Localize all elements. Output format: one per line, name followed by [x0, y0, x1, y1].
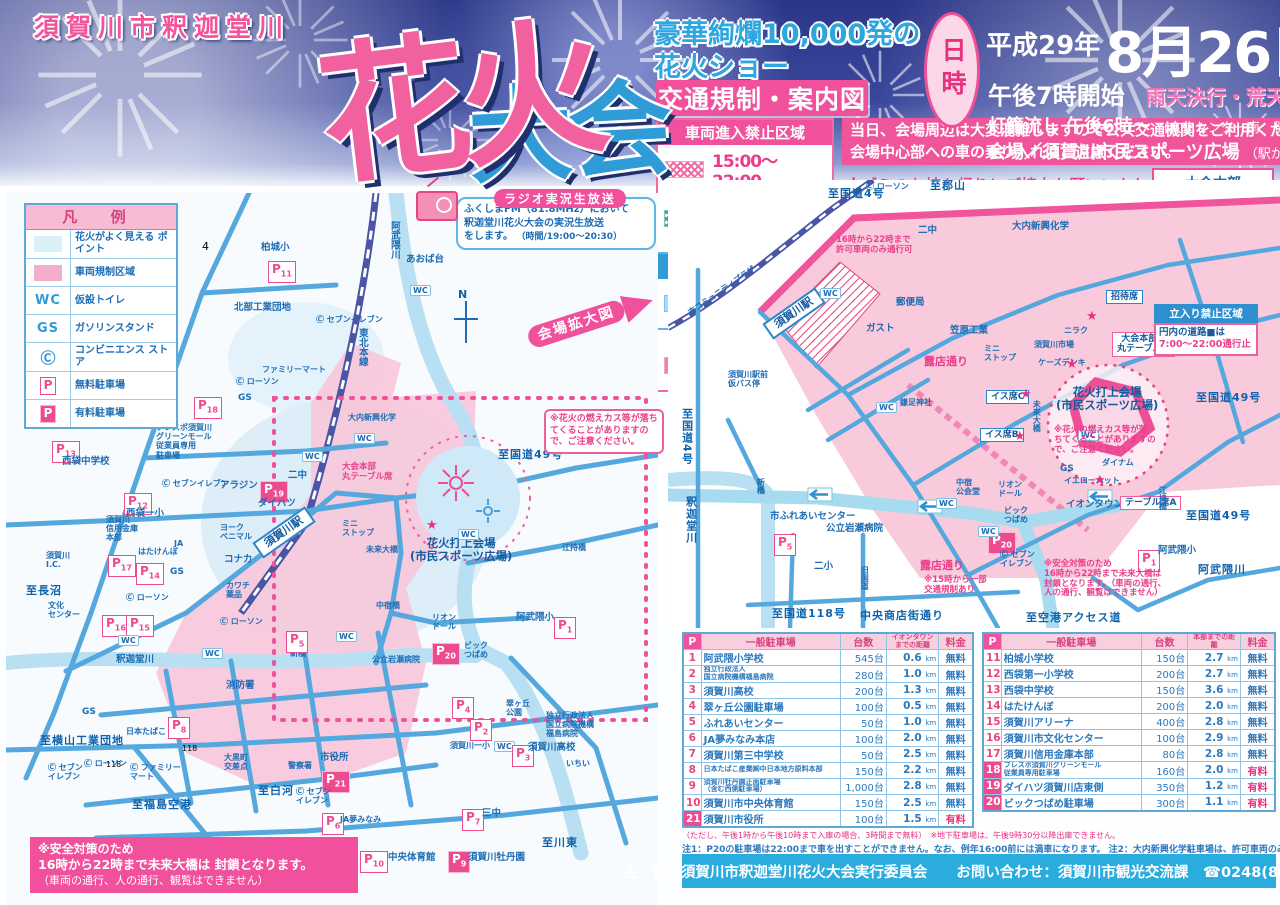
map-label: 笠原工業 [950, 326, 988, 337]
map-label: WC [936, 498, 957, 509]
free-parking-marker: P14 [136, 563, 164, 585]
parking-number: 4 [683, 698, 701, 714]
legend-label: 無料駐車場 [71, 378, 129, 394]
map-label: 花火打上会場 (市民スポーツ広場) [1056, 386, 1158, 412]
km-unit: km [1227, 671, 1238, 679]
map-label: JA夢みなみ [340, 815, 381, 824]
parking-col-header: 台数 [1141, 633, 1188, 650]
parking-name: 柏城小学校 [1001, 650, 1141, 666]
parking-capacity: 100台 [840, 698, 886, 714]
parking-capacity: 200台 [1141, 666, 1188, 682]
map-label: 阿武隈小 [516, 613, 554, 624]
parking-number: 21 [683, 811, 701, 828]
parking-capacity: 350台 [1141, 778, 1188, 794]
legend-symbol: P [26, 372, 71, 399]
touro-label: 灯籠流し 午後6時～ [988, 116, 1151, 137]
map-label: はたけんぼ [138, 547, 178, 556]
map-label: ダイナム [1102, 458, 1134, 467]
parking-distance: 1.1 km [1188, 794, 1241, 811]
map-label: 須賀川市場 [1034, 340, 1074, 349]
free-parking-marker: P [40, 377, 57, 395]
map-label: WC [118, 635, 139, 646]
parking-row: 14はたけんぼ200台2.0 km無料 [983, 698, 1275, 714]
parking-name: 須賀川高校 [701, 682, 840, 698]
map-label: GS [82, 707, 96, 717]
parking-row: 4翠ヶ丘公園駐車場100台0.5 km無料 [683, 698, 973, 714]
parking-name: 日本たばこ産業㈱中日本地方原料本部 [701, 762, 840, 778]
map-label: 露店通り [920, 560, 964, 573]
parking-capacity: 80台 [1141, 746, 1188, 762]
parking-number: 8 [683, 762, 701, 778]
map-label: P1 [554, 615, 576, 639]
legend-label: ガソリンスタンド [71, 321, 159, 337]
legend-row: 車両規制区域 [26, 259, 176, 287]
parking-name: フレスポ須賀川グリーンモール 従業員専用駐車場 [1001, 762, 1141, 778]
map-label: Ⓒ ローソン [126, 593, 169, 602]
map-label: 大会本部 丸テーブル席 [342, 463, 393, 483]
parking-fee: 無料 [939, 746, 973, 762]
parking-distance: 2.5 km [886, 795, 938, 811]
legend-symbol: Ⓒ [26, 343, 71, 371]
touro-line: 灯籠流し 午後6時～ （文化センター南 釈迦堂川河川敷） [988, 112, 1280, 138]
parking-col-header: 一般駐車場 [1001, 633, 1141, 650]
map-label: ガスト [866, 324, 895, 335]
parking-row: 3須賀川高校200台1.3 km無料 [683, 682, 973, 698]
parking-distance: 1.5 km [886, 811, 938, 828]
map-label: 釈迦堂川 [116, 655, 154, 666]
map-label: Ⓒ セブンイレブン [316, 315, 383, 324]
parking-distance: 2.0 km [1188, 698, 1241, 714]
parking-number: 16 [983, 730, 1001, 746]
map-label: コナカ [224, 555, 253, 566]
legend-row: WC仮設トイレ [26, 287, 176, 315]
map-label: 須賀川一小 [450, 741, 490, 750]
parking-name: ビックつばめ駐車場 [1001, 794, 1141, 811]
legend-label: 車両規制区域 [71, 265, 139, 281]
parking-fee: 無料 [1241, 650, 1276, 666]
parking-row: 15須賀川アリーナ400台2.8 km無料 [983, 714, 1275, 730]
map-label: 大黒町 交差点 [224, 753, 248, 771]
no-go-title: 立入り禁止区域 [1154, 304, 1258, 323]
parking-row: 1阿武隈小学校545台0.6 km無料 [683, 650, 973, 666]
map-label: ★ [1020, 388, 1032, 403]
parking-name: ふれあいセンター [701, 714, 840, 730]
parking-name: 阿武隈小学校 [701, 650, 840, 666]
map-label: あおば台 [406, 255, 444, 266]
parking-fee: 無料 [939, 698, 973, 714]
parking-fee: 無料 [939, 714, 973, 730]
legend-symbol [26, 230, 71, 258]
map-label: 須賀川 信用金庫 本部 [106, 515, 138, 543]
touro-note: （文化センター南 釈迦堂川河川敷） [1156, 121, 1280, 136]
no-go-line1: 円内の道路■は [1159, 327, 1253, 339]
free-parking-marker: P5 [286, 631, 308, 653]
flyer-page: 須賀川市釈迦堂川 花火 大会 豪華絢爛10,000発の 花火ショー 交通規制・案… [0, 0, 1280, 905]
parking-number: 14 [983, 698, 1001, 714]
map-legend: 凡 例 花火がよく見える ポイント車両規制区域WC仮設トイレGSガソリンスタンド… [24, 203, 178, 429]
parking-capacity: 300台 [1141, 794, 1188, 811]
parking-number: 5 [683, 714, 701, 730]
map-label: 未来大橋 [366, 545, 398, 554]
km-unit: km [1227, 655, 1238, 663]
parking-col-header: P [683, 633, 701, 650]
era-label: 平成29年 [986, 31, 1100, 61]
radio-time: （時間/19:00～20:30） [516, 232, 622, 242]
parking-capacity: 100台 [840, 811, 886, 828]
falling-ash-note: ※花火の燃えカス等が落ちてくることがありますので、ご注意ください。 [544, 409, 664, 454]
parking-capacity: 150台 [1141, 682, 1188, 698]
venue-label: 会場／須賀川市民スポーツ広場 [988, 142, 1240, 163]
km-unit: km [1227, 767, 1238, 775]
parking-name: 西袋第一小学校 [1001, 666, 1141, 682]
parking-capacity: 200台 [840, 682, 886, 698]
gs-icon: GS [37, 321, 59, 336]
parking-distance: 0.6 km [886, 650, 938, 666]
map-label: P17 [108, 553, 136, 577]
map-label: WC [202, 648, 223, 659]
parking-fee: 有料 [1241, 762, 1276, 778]
radio-line2: 釈迦堂川花火大会の実況生放送 [464, 218, 604, 229]
legend-label: 有料駐車場 [71, 406, 129, 422]
map-label: WC [410, 285, 431, 296]
safety-line1: ※安全対策のため [38, 841, 350, 857]
parking-distance: 2.8 km [886, 778, 938, 794]
parking-number: 18 [983, 762, 1001, 778]
parking-name: はたけんぼ [1001, 698, 1141, 714]
legend-row: P有料駐車場 [26, 400, 176, 427]
parking-distance: 2.5 km [886, 746, 938, 762]
parking-capacity: 100台 [840, 730, 886, 746]
parking-fee: 有料 [939, 811, 973, 828]
weather-policy: 雨天決行・荒天中止 [1146, 85, 1280, 109]
map-label: JA [174, 539, 183, 548]
start-time: 午後7時開始 [988, 82, 1125, 110]
parking-row: 12西袋第一小学校200台2.7 km無料 [983, 666, 1275, 682]
legend-label: 花火がよく見える ポイント [71, 230, 176, 258]
parking-capacity: 50台 [840, 714, 886, 730]
map-label: 公立岩瀬病院 [826, 524, 883, 535]
map-label: Ⓒ ファミリー マート [130, 763, 181, 781]
map-label: 阿武隈小 [1158, 546, 1196, 557]
parking-fee: 無料 [1241, 730, 1276, 746]
map-label: Ⓒ ローソン [236, 377, 279, 386]
legend-symbol [26, 259, 71, 286]
map-label: Ⓒ ローソン [84, 759, 127, 768]
map-label: 旧国道 [860, 566, 869, 590]
parking-fee: 無料 [1241, 746, 1276, 762]
venue-enlarged-map: 立入り禁止区域 円内の道路■は 7:00～22:00通行止 至国道4号Ⓒ ローソ… [668, 180, 1280, 628]
free-parking-marker: P8 [168, 717, 190, 739]
parking-row: 10須賀川市中央体育館150台2.5 km無料 [683, 795, 973, 811]
banner: 須賀川市釈迦堂川 花火 大会 豪華絢爛10,000発の 花火ショー 交通規制・案… [0, 0, 1280, 186]
km-unit: km [1227, 783, 1238, 791]
map-label: 至国道49号 [1186, 510, 1251, 523]
parking-section: P一般駐車場台数イオンタウンまでの距離料金1阿武隈小学校545台0.6 km無料… [682, 632, 1276, 855]
map-label: ミニ ストップ [342, 519, 374, 537]
map-label: イオンタウン [1066, 500, 1123, 511]
free-parking-marker: P10 [360, 851, 388, 873]
map-label: リオン ドール [998, 480, 1022, 498]
parking-capacity: 150台 [1141, 650, 1188, 666]
map-label: P11 [268, 259, 296, 283]
parking-capacity: 400台 [1141, 714, 1188, 730]
parking-number: 6 [683, 730, 701, 746]
parking-number: 3 [683, 682, 701, 698]
map-label: GS [170, 567, 184, 577]
km-unit: km [1227, 751, 1238, 759]
map-label: ダイハツ [258, 499, 296, 510]
parking-distance: 2.9 km [1188, 730, 1241, 746]
parking-col-header: P [983, 633, 1001, 650]
parking-distance: 2.0 km [1188, 762, 1241, 778]
map-label: 公立岩瀬病院 [372, 655, 420, 664]
map-label: WC [820, 288, 841, 299]
map-label: 二中 [288, 471, 307, 482]
parking-row: 8日本たばこ産業㈱中日本地方原料本部150台2.2 km無料 [683, 762, 973, 778]
map-legend-title: 凡 例 [26, 205, 176, 230]
map-legend-rows: 花火がよく見える ポイント車両規制区域WC仮設トイレGSガソリンスタンドⒸコンビ… [26, 230, 176, 427]
parking-name: ダイハツ須賀川店東側 [1001, 778, 1141, 794]
parking-capacity: 160台 [1141, 762, 1188, 778]
map-label: いちい [566, 759, 590, 768]
map-label: 江持橋 [1158, 486, 1167, 510]
map-label: Ⓒ セブンイレブン [162, 479, 229, 488]
parking-name: JA夢みなみ本店 [701, 730, 840, 746]
parking-capacity: 100台 [1141, 730, 1188, 746]
map-label: 中央体育館 [388, 853, 436, 864]
parking-number: 15 [983, 714, 1001, 730]
map-label: WC [354, 433, 375, 444]
map-label: アラジン [220, 481, 258, 492]
map-label: 未来大橋 [1032, 400, 1041, 432]
parking-number: 17 [983, 746, 1001, 762]
map-label: ※15時から一部 交通規制あり [924, 576, 987, 596]
map-label: ★ [426, 519, 438, 534]
map-label: 至郡山 [930, 180, 966, 193]
river-title: 須賀川市釈迦堂川 [34, 8, 290, 44]
bridge-closure-notice: ※安全対策のため 16時から22時まで未来大橋は 封鎖となります。 （車両の通行… [30, 837, 358, 893]
parking-row: 7須賀川第三中学校50台2.5 km無料 [683, 746, 973, 762]
parking-header-row: P一般駐車場台数イオンタウンまでの距離料金 [683, 633, 973, 650]
map-label: 須賀川駅前 仮バス停 [728, 370, 768, 388]
map-label: WC [336, 631, 357, 642]
map-label: 至国道118号 [772, 608, 846, 621]
map-label: テーブル席A [1120, 496, 1181, 510]
parking-row: 5ふれあいセンター50台1.0 km無料 [683, 714, 973, 730]
map-label: 独立行政法人 国立病院機構 福島病院 [546, 711, 594, 739]
map-label: 日本たばこ [126, 727, 166, 736]
traffic-guide-badge: 交通規制・案内図 [656, 80, 868, 116]
map-label: P5 [286, 629, 308, 653]
parking-col-header: 本部までの距離 [1188, 633, 1241, 650]
km-unit: km [1227, 799, 1238, 807]
map-label: Ⓒ ローソン [866, 182, 909, 191]
parking-distance: 3.6 km [1188, 682, 1241, 698]
parking-col-header: 一般駐車場 [701, 633, 840, 650]
map-label: ミニ ストップ [984, 344, 1016, 362]
venue-note: （駅から鑑賞エリアまで徒歩10分） [1245, 147, 1280, 162]
parking-fee: 無料 [1241, 666, 1276, 682]
map-label: N [458, 289, 468, 302]
map-label: ★ [1066, 358, 1078, 373]
km-unit: km [925, 783, 936, 791]
map-label: 市ふれあいセンター [770, 512, 856, 523]
map-label: 大内新興化学 [1012, 222, 1069, 233]
map-label: 阿武隈川 [1198, 564, 1246, 577]
parking-row: 6JA夢みなみ本店100台2.0 km無料 [683, 730, 973, 746]
parking-distance: 1.0 km [886, 714, 938, 730]
parking-fee: 有料 [1241, 794, 1276, 811]
map-label: Ⓒ セブン イレブン [296, 787, 331, 805]
map-label: 至福島空港 [132, 799, 192, 812]
map-label: 須賀川牡丹園 [468, 853, 525, 864]
parking-fee-note: （ただし、午後1時から午後10時まで入庫の場合、3時間まで無料） ※地下駐車場は… [682, 828, 1276, 841]
parking-distance: 2.7 km [1188, 666, 1241, 682]
map-label: 西袋中学校 [62, 457, 110, 468]
map-label: Ⓒ セブン イレブン [1000, 550, 1035, 568]
paid-parking-marker: P20 [432, 643, 460, 665]
km-unit: km [925, 687, 936, 695]
map-label: 16時から22時まで 許可車両のみ通行可 [836, 236, 913, 256]
parking-name: 須賀川信用金庫本部 [1001, 746, 1141, 762]
parking-fee: 無料 [939, 795, 973, 811]
map-label: ファミリーマート [262, 365, 326, 374]
legend-row: GSガソリンスタンド [26, 315, 176, 343]
parking-name: 須賀川牡丹園正面駐車場 （含む西側駐車場） [701, 778, 840, 794]
map-label: GS [238, 393, 252, 403]
map-label: 須賀川高校 [528, 743, 576, 754]
parking-number: 10 [683, 795, 701, 811]
no-go-body: 円内の道路■は 7:00～22:00通行止 [1154, 323, 1258, 356]
legend-symbol: WC [26, 287, 71, 314]
map-label: P15 [126, 613, 154, 637]
free-parking-marker: P1 [554, 617, 576, 639]
km-unit: km [925, 816, 936, 824]
parking-fee: 無料 [939, 730, 973, 746]
city-overview-map: 凡 例 花火がよく見える ポイント車両規制区域WC仮設トイレGSガソリンスタンド… [6, 193, 658, 905]
parking-name: 須賀川第三中学校 [701, 746, 840, 762]
km-unit: km [925, 719, 936, 727]
wc-icon: WC [35, 293, 61, 308]
legend-swatch [34, 236, 62, 252]
start-line: 午後7時開始 雨天決行・荒天中止 [988, 76, 1280, 111]
map-label: ★ [1014, 430, 1026, 445]
parking-capacity: 200台 [1141, 698, 1188, 714]
km-unit: km [925, 767, 936, 775]
map-label: ビック つばめ [1004, 506, 1028, 524]
parking-distance: 1.0 km [886, 666, 938, 682]
km-unit: km [925, 735, 936, 743]
map-label: 中宿 公会堂 [956, 478, 980, 496]
map-label: 至長沼 [26, 585, 62, 598]
parking-number: 9 [683, 778, 701, 794]
parking-number: 7 [683, 746, 701, 762]
map-label: 江持橋 [562, 543, 586, 552]
parking-capacity: 1,000台 [840, 778, 886, 794]
km-unit: km [925, 703, 936, 711]
map-label: 露店通り [924, 356, 968, 369]
parking-distance: 1.3 km [886, 682, 938, 698]
free-parking-marker: P18 [194, 397, 222, 419]
safety-line3: （車両の通行、人の通行、観覧はできません） [38, 874, 350, 889]
legend-swatch [34, 265, 62, 281]
map-label: 花火打上会場 (市民スポーツ広場) [410, 537, 512, 563]
km-unit: km [925, 671, 936, 679]
map-label: P14 [136, 561, 164, 585]
map-label: GS [1060, 464, 1074, 474]
km-unit: km [1227, 703, 1238, 711]
map-label: ヨーク ベニマル [220, 523, 252, 541]
map-label: ビック つばめ [464, 641, 488, 659]
no-go-line2: 7:00～22:00通行止 [1159, 339, 1253, 351]
free-parking-marker: P17 [108, 555, 136, 577]
map-label: WC [458, 529, 479, 540]
parking-capacity: 545台 [840, 650, 886, 666]
map-label: ※花火の燃えカス等が落 ちてくることがありますの で、ご注意ください。 [1054, 426, 1156, 455]
legend-row: Ⓒコンビニエンス ストア [26, 343, 176, 372]
safety-line2: 16時から22時まで未来大橋は 封鎖となります。 [38, 857, 350, 874]
parking-fee: 無料 [1241, 698, 1276, 714]
parking-number: 1 [683, 650, 701, 666]
km-unit: km [1227, 735, 1238, 743]
parking-row: 21須賀川市役所100台1.5 km有料 [683, 811, 973, 828]
map-label: P20 [432, 641, 460, 665]
map-label: 消防署 [226, 681, 255, 692]
map-label: 東北本線 [356, 328, 367, 366]
parking-col-header: イオンタウンまでの距離 [886, 633, 938, 650]
parking-col-header: 料金 [1241, 633, 1276, 650]
parking-fee: 有料 [1241, 778, 1276, 794]
map-label: Ⓒ セブン イレブン [48, 763, 83, 781]
map-label: 至国道4号 [680, 408, 693, 465]
map-label: 118 [182, 743, 208, 762]
map-label: P10 [360, 849, 388, 873]
km-unit: km [925, 751, 936, 759]
parking-name: 西袋中学校 [1001, 682, 1141, 698]
parking-fee: 無料 [1241, 714, 1276, 730]
venue-line: 会場／須賀川市民スポーツ広場 （駅から鑑賞エリアまで徒歩10分） [988, 138, 1280, 164]
map-label: リオン ドール [432, 613, 456, 631]
no-go-zone-box: 立入り禁止区域 円内の道路■は 7:00～22:00通行止 [1154, 304, 1258, 356]
parking-distance: 2.8 km [1188, 714, 1241, 730]
legend-row: P無料駐車場 [26, 372, 176, 400]
parking-row: 13西袋中学校150台3.6 km無料 [983, 682, 1275, 698]
radio-badge: ラジオ実況生放送 [494, 189, 626, 208]
radio-line3: をします。 [464, 231, 513, 242]
legend-label: コンビニエンス ストア [71, 343, 176, 371]
convenience-icon: Ⓒ [40, 347, 55, 368]
km-unit: km [1227, 719, 1238, 727]
map-label: ★ [1086, 310, 1098, 325]
title-hanabi: 花火 [306, 0, 606, 215]
free-parking-marker: P5 [774, 534, 796, 556]
parking-row: 17須賀川信用金庫本部80台2.8 km無料 [983, 746, 1275, 762]
parking-number: 19 [983, 778, 1001, 794]
map-label: 須賀川 I.C. [46, 551, 70, 569]
map-label: 二小 [814, 562, 833, 573]
radio-broadcast-box: ラジオ実況生放送 ふくしまFM（81.8MHz）において 釈迦堂川花火大会の実況… [456, 197, 656, 250]
parking-distance: 2.2 km [886, 762, 938, 778]
parking-table-right: P一般駐車場台数本部までの距離料金11柏城小学校150台2.7 km無料12西袋… [982, 632, 1276, 812]
map-label: 至国道49号 [1196, 392, 1261, 405]
map-label: ケーズデンキ [1038, 358, 1086, 367]
parking-col-header: 料金 [939, 633, 973, 650]
map-label: WC [302, 451, 323, 462]
map-label: 翠ヶ丘 公園 [506, 699, 530, 717]
map-label: 柏城小 [261, 243, 290, 254]
map-label: ニラク [1064, 326, 1088, 335]
map-label: 至横山工業団地 [40, 735, 124, 748]
